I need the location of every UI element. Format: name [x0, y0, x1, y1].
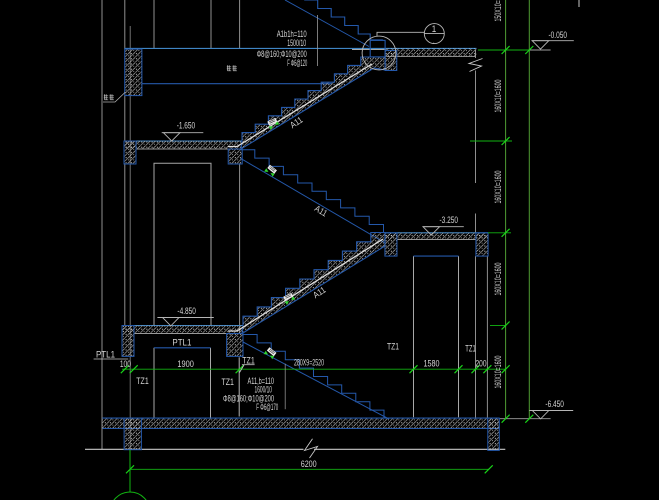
- svg-text:TZ1: TZ1: [136, 376, 149, 386]
- svg-text:100: 100: [120, 359, 131, 369]
- svg-text:TZ1: TZ1: [242, 356, 255, 366]
- svg-text:-3.250: -3.250: [440, 215, 459, 225]
- svg-text:6200: 6200: [301, 459, 317, 469]
- svg-text:1: 1: [432, 24, 437, 34]
- svg-text:1900: 1900: [177, 359, 194, 369]
- svg-text:F Φ6@120: F Φ6@120: [287, 58, 307, 68]
- svg-text:280X9=2520: 280X9=2520: [294, 358, 324, 368]
- svg-text:160X10=1600: 160X10=1600: [493, 170, 503, 203]
- svg-text:-1.650: -1.650: [177, 121, 196, 131]
- svg-text:TZ1: TZ1: [387, 342, 399, 352]
- svg-text:150X10=1500: 150X10=1500: [493, 0, 503, 22]
- svg-text:160X10=1600: 160X10=1600: [493, 79, 503, 112]
- svg-text:-0.050: -0.050: [549, 30, 568, 40]
- svg-text:1580: 1580: [424, 359, 440, 369]
- svg-text:-4.850: -4.850: [177, 306, 196, 316]
- svg-text:160X10=1600: 160X10=1600: [493, 262, 503, 295]
- svg-text:TZ1: TZ1: [221, 377, 234, 387]
- svg-text:PTL1: PTL1: [172, 338, 191, 348]
- svg-text:-6.450: -6.450: [545, 399, 564, 409]
- svg-text:TZ1: TZ1: [465, 344, 476, 354]
- svg-text:F Φ6@170: F Φ6@170: [256, 402, 278, 412]
- svg-text:.: .: [433, 39, 435, 46]
- svg-text:160X10=1600: 160X10=1600: [493, 355, 503, 388]
- svg-text:1500/10: 1500/10: [287, 38, 306, 48]
- svg-text:200: 200: [476, 359, 487, 369]
- svg-text:PTL1: PTL1: [96, 350, 115, 360]
